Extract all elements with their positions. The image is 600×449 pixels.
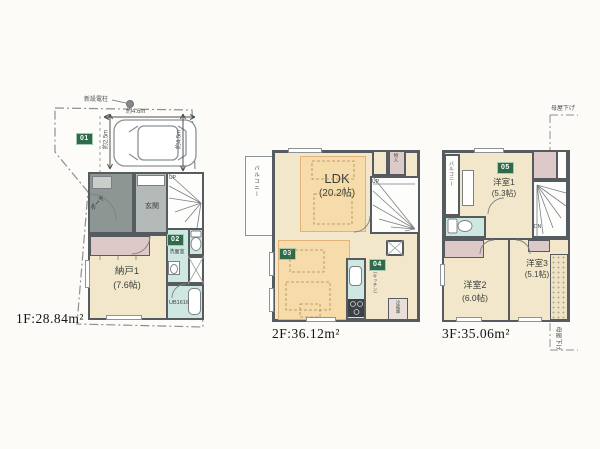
room2-size: (6.0帖)	[448, 293, 502, 304]
area-label-3f: 3F:35.06m²	[442, 326, 510, 342]
fridge-label: 冷蔵庫	[395, 300, 401, 314]
storage-name: 納戸1	[96, 266, 158, 278]
genkan-label: 玄関	[138, 202, 166, 211]
window	[106, 315, 142, 320]
badge-01: 01	[76, 133, 93, 145]
badge-02: 02	[167, 234, 184, 246]
area-label-2f: 2F:36.12m²	[272, 326, 340, 342]
stairs-dn-label: DN	[534, 224, 541, 231]
floorplan-canvas: 新設電柱 約4.6m 約2.5m 約4.5m 01 ポーチ 玄関 UP 02 洗…	[0, 0, 600, 449]
room-toilet-3f	[444, 216, 486, 238]
roof-note-top: 母屋下げ	[551, 103, 575, 112]
stove	[348, 299, 364, 317]
badge-03: 03	[279, 248, 296, 260]
stairs-up-label-1f: UP	[169, 175, 176, 182]
window	[456, 317, 482, 322]
roof-note-bottom: 母屋下げ	[555, 324, 564, 354]
balcony-label-3f: バルコニー	[448, 161, 455, 186]
washroom-label: 洗面室	[165, 249, 189, 256]
stairs-up-label-2f: UP	[372, 179, 379, 186]
area-label-1f: 1F:28.84m²	[16, 311, 84, 327]
window	[306, 317, 336, 322]
storage-size: (7.6帖)	[96, 280, 158, 292]
closet-3f-side	[556, 150, 568, 180]
balcony-label-2f: バルコニー	[252, 165, 260, 198]
room3-name: 洋室3	[514, 258, 560, 269]
room1-size: (5.3帖)	[478, 189, 530, 199]
shaft-2f	[386, 240, 404, 256]
dimension-label-depth: 約2.5m	[101, 123, 110, 157]
car-icon	[114, 120, 196, 166]
kitchen-sink	[349, 266, 362, 286]
kitchen-note: (キッチン)	[372, 272, 378, 293]
dimension-label-side: 約4.5m	[174, 123, 183, 157]
window	[440, 264, 445, 286]
window	[288, 148, 322, 153]
porch-step	[92, 176, 112, 189]
closet-room3	[528, 240, 550, 252]
window	[518, 317, 542, 322]
closet-2f-label: 物入	[393, 153, 399, 162]
window	[269, 252, 274, 276]
dimension-label-width: 約4.6m	[126, 106, 145, 115]
ldk-size: (20.2帖)	[305, 187, 369, 200]
closet-room2	[444, 240, 484, 258]
room3-size: (5.1帖)	[514, 270, 560, 280]
room-toilet-1f	[188, 228, 204, 256]
room1-name: 洋室1	[478, 177, 530, 188]
storage-counter	[90, 236, 150, 256]
room2-name: 洋室2	[448, 280, 502, 292]
window	[269, 288, 274, 312]
pantry-box	[372, 150, 388, 176]
window	[474, 148, 504, 153]
closet-3f-top	[532, 150, 558, 180]
window	[85, 260, 90, 288]
vanity	[168, 261, 180, 275]
badge-04: 04	[369, 259, 386, 271]
shaft-1f	[188, 256, 204, 284]
bath-label: UB1616	[164, 300, 194, 307]
desk-counter	[462, 170, 474, 206]
pole-label: 新設電柱	[84, 94, 108, 103]
shoe-cabinet	[137, 175, 165, 186]
ldk-name: LDK	[305, 171, 369, 188]
badge-05: 05	[497, 162, 514, 174]
